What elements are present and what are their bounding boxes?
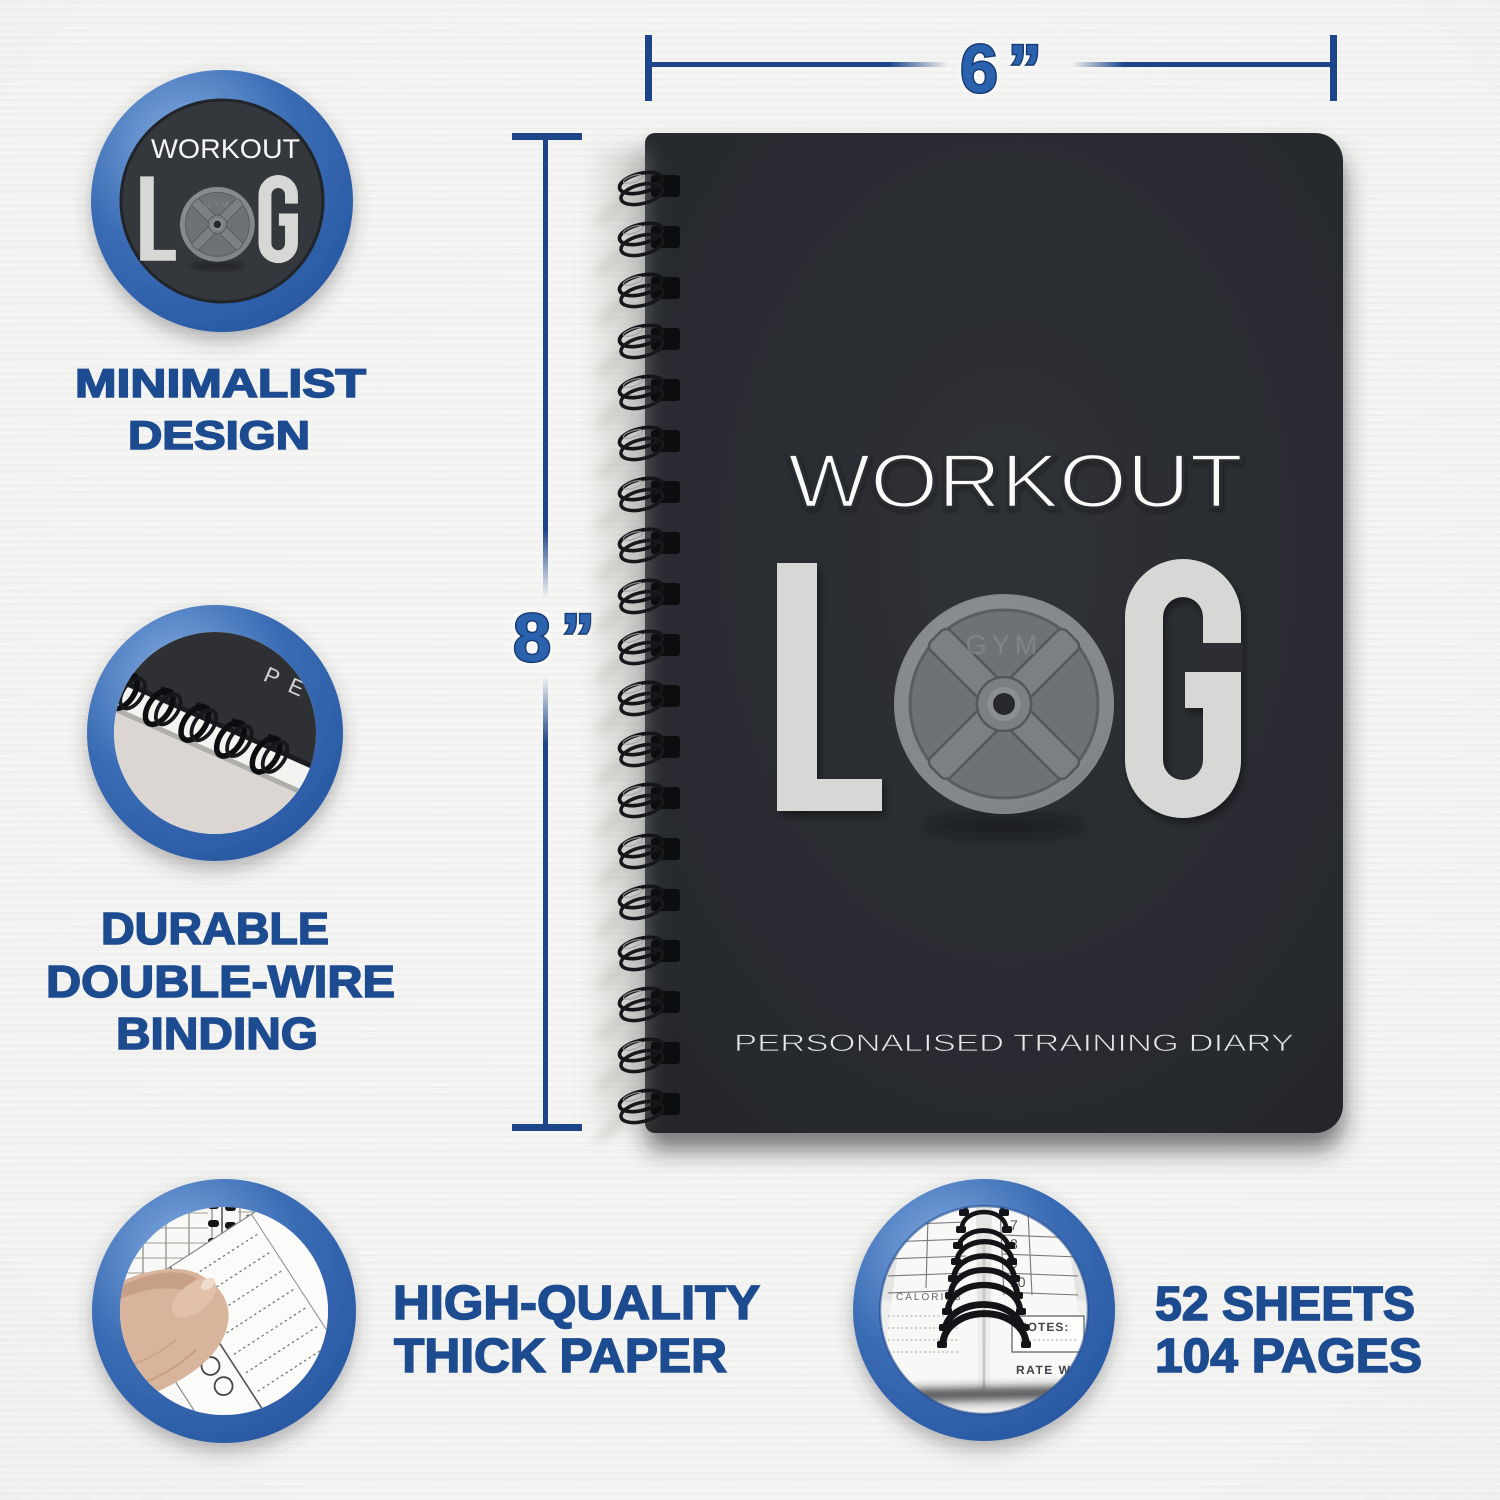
svg-text:WORKOUT: WORKOUT bbox=[788, 439, 1243, 524]
svg-text:DESIGN: DESIGN bbox=[128, 414, 310, 458]
svg-text:104 PAGES: 104 PAGES bbox=[1155, 1330, 1422, 1383]
svg-text:GYM: GYM bbox=[204, 199, 230, 209]
svg-text:HIGH-QUALITY: HIGH-QUALITY bbox=[393, 1277, 760, 1330]
svg-text:6”: 6” bbox=[960, 31, 1052, 107]
svg-text:52 SHEETS: 52 SHEETS bbox=[1155, 1278, 1415, 1331]
svg-text:WORKOUT: WORKOUT bbox=[151, 134, 300, 164]
svg-text:THICK PAPER: THICK PAPER bbox=[394, 1330, 727, 1383]
svg-text:BINDING: BINDING bbox=[116, 1008, 318, 1059]
svg-text:PERSONALISED TRAINING DIARY: PERSONALISED TRAINING DIARY bbox=[734, 1030, 1294, 1057]
svg-text:DOUBLE-WIRE: DOUBLE-WIRE bbox=[46, 956, 395, 1007]
svg-text:MINIMALIST: MINIMALIST bbox=[75, 362, 366, 406]
svg-text:GYM: GYM bbox=[966, 630, 1043, 660]
svg-text:DURABLE: DURABLE bbox=[101, 903, 329, 954]
